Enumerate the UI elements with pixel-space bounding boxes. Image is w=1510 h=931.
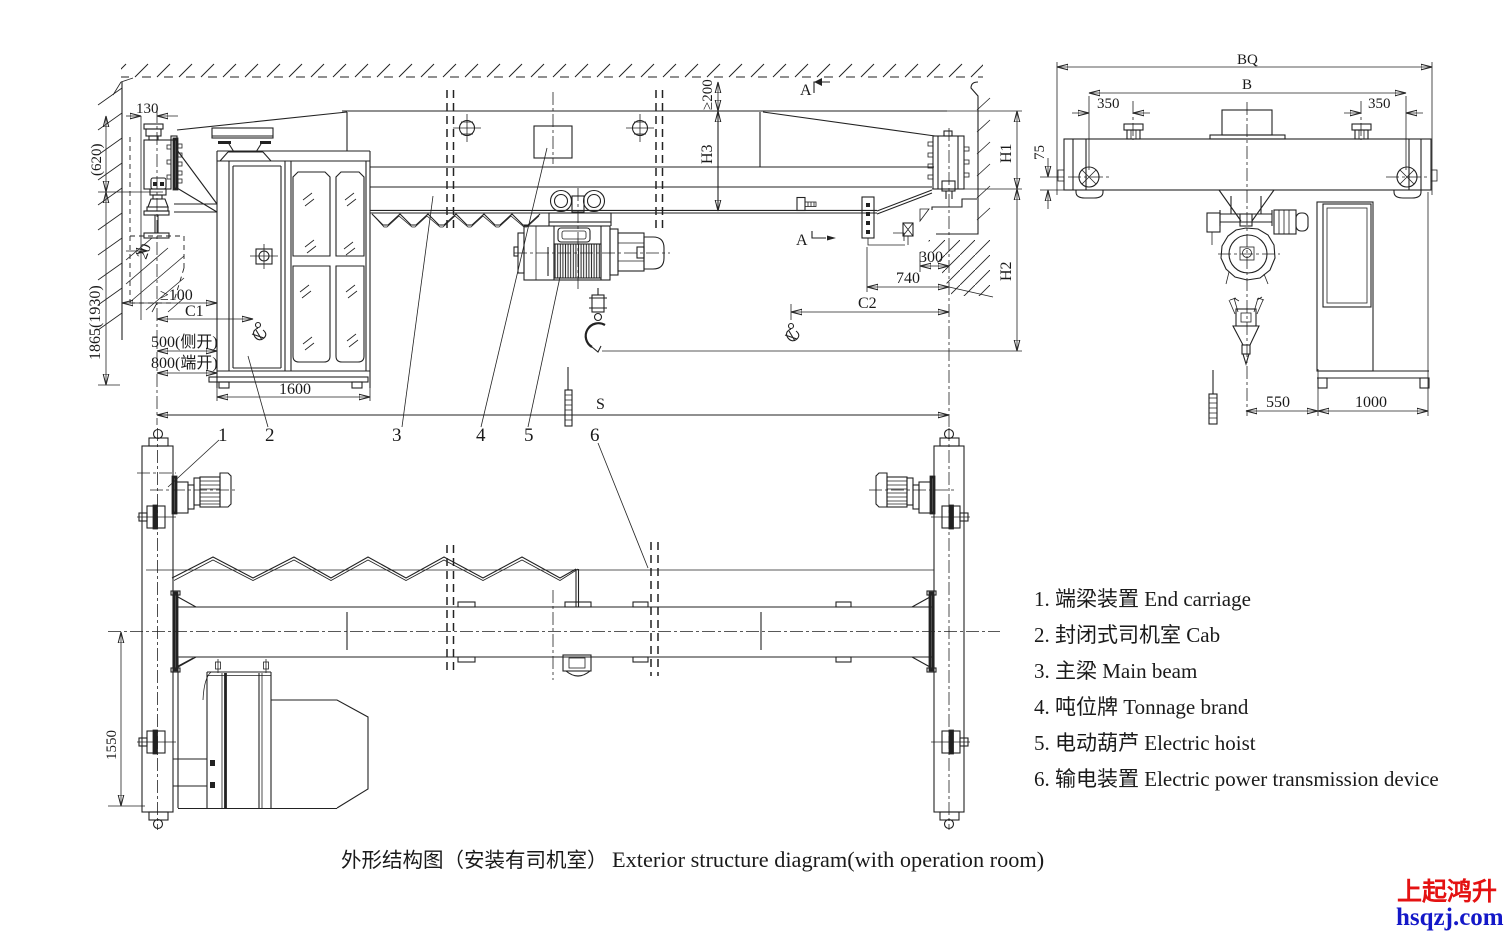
svg-text:1. 端梁装置 End carriage: 1. 端梁装置 End carriage [1034, 587, 1251, 611]
svg-text:20: 20 [135, 242, 155, 262]
svg-text:4: 4 [476, 425, 486, 446]
svg-text:hsqzj.com: hsqzj.com [1396, 904, 1504, 931]
svg-text:H3: H3 [699, 144, 716, 164]
svg-text:Exterior structure diagram(wit: Exterior structure diagram(with operatio… [612, 847, 1044, 872]
svg-text:350: 350 [1097, 96, 1120, 112]
svg-text:B: B [1242, 77, 1252, 93]
svg-text:5. 电动葫芦 Electric hoist: 5. 电动葫芦 Electric hoist [1034, 731, 1256, 755]
svg-text:3: 3 [392, 425, 402, 446]
svg-text:C2: C2 [858, 295, 877, 312]
svg-text:130: 130 [136, 101, 159, 117]
svg-text:H1: H1 [998, 143, 1015, 163]
svg-text:1: 1 [218, 425, 228, 446]
svg-text:≥100: ≥100 [160, 287, 193, 304]
svg-text:BQ: BQ [1237, 52, 1258, 68]
svg-text:H2: H2 [998, 261, 1015, 281]
svg-text:C1: C1 [185, 303, 204, 320]
svg-text:4. 吨位牌 Tonnage brand: 4. 吨位牌 Tonnage brand [1034, 695, 1249, 719]
svg-text:800(端开): 800(端开) [151, 354, 218, 372]
svg-text:(620): (620) [89, 144, 105, 177]
svg-text:外形结构图（安装有司机室）: 外形结构图（安装有司机室） [341, 849, 608, 872]
svg-text:A: A [800, 82, 812, 99]
svg-text:1865(1930): 1865(1930) [87, 285, 104, 360]
svg-text:500(侧开): 500(侧开) [151, 333, 218, 351]
svg-text:300: 300 [919, 249, 943, 266]
svg-text:上起鸿升: 上起鸿升 [1397, 877, 1497, 906]
svg-text:5: 5 [524, 425, 534, 446]
svg-text:75: 75 [1032, 145, 1048, 160]
svg-text:S: S [596, 396, 605, 413]
svg-text:350: 350 [1368, 96, 1391, 112]
svg-text:1600: 1600 [279, 381, 311, 398]
svg-text:1550: 1550 [104, 730, 120, 760]
svg-text:A: A [796, 232, 808, 249]
svg-text:≥200: ≥200 [700, 79, 716, 110]
svg-text:1000: 1000 [1355, 394, 1387, 411]
svg-text:6: 6 [590, 425, 600, 446]
svg-text:3. 主梁 Main beam: 3. 主梁 Main beam [1034, 659, 1197, 683]
svg-text:550: 550 [1266, 394, 1290, 411]
svg-text:2: 2 [265, 425, 275, 446]
svg-text:2. 封闭式司机室 Cab: 2. 封闭式司机室 Cab [1034, 623, 1220, 647]
svg-text:740: 740 [896, 270, 920, 287]
svg-text:6. 输电装置 Electric power transmi: 6. 输电装置 Electric power transmission devi… [1034, 767, 1439, 791]
